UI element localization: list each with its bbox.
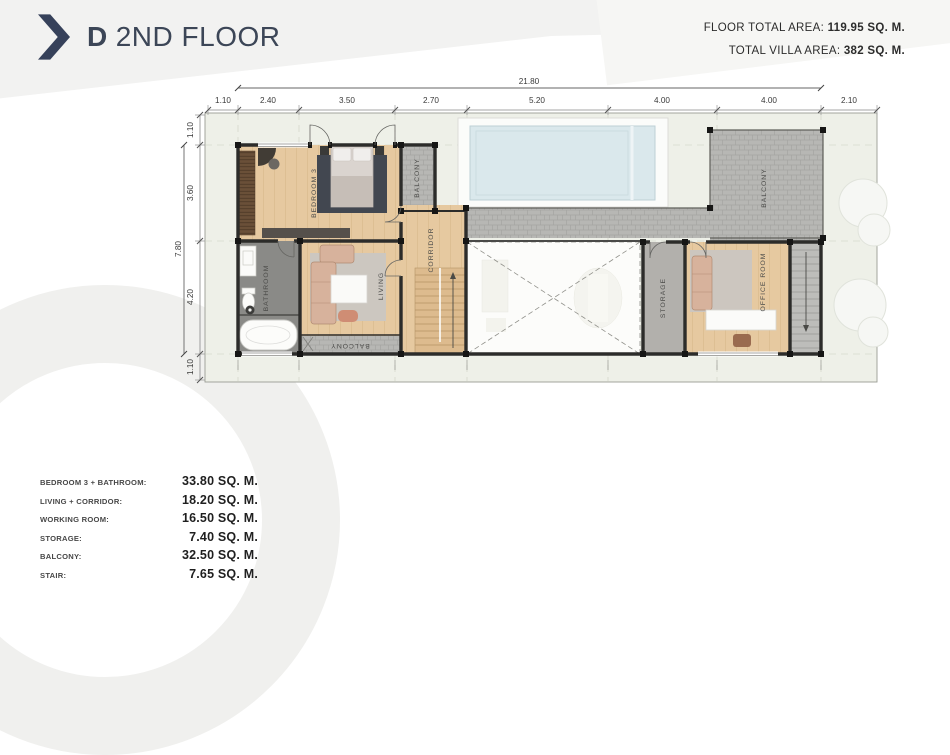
dim-top-5: 4.00 [654,96,670,105]
floor-plan: BEDROOM 3 BALCONY CORRIDOR BATHROOM LIVI… [170,60,910,390]
legend-label: STORAGE: [40,534,165,543]
dim-top-2: 3.50 [339,96,355,105]
room-label-storage: STORAGE [660,278,667,318]
legend-label: BALCONY: [40,552,165,561]
dim-left-total: 7.80 [174,241,183,257]
room-label-corridor: CORRIDOR [428,227,435,272]
dim-left-3: 1.10 [186,359,195,375]
dim-left-0: 1.10 [186,122,195,138]
floor-title: 2ND FLOOR [116,21,281,52]
dim-left-1: 3.60 [186,185,195,201]
dim-top-0: 1.10 [215,96,231,105]
villa-total-area: TOTAL VILLA AREA: 382 SQ. M. [704,45,905,57]
legend-value: 16.50 SQ. M. [165,511,258,525]
room-label-balcony-small: BALCONY [414,158,421,197]
legend-row: BEDROOM 3 + BATHROOM:33.80 SQ. M. [40,474,258,488]
dim-top-7: 2.10 [841,96,857,105]
page-header: D2ND FLOOR [38,14,280,60]
area-legend: BEDROOM 3 + BATHROOM:33.80 SQ. M. LIVING… [40,474,258,586]
bed [331,145,373,207]
dim-top-3: 2.70 [423,96,439,105]
dresser [262,228,350,238]
villa-total-value: 382 SQ. M. [844,45,905,57]
room-label-balcony-main: BALCONY [761,168,768,207]
legend-label: BEDROOM 3 + BATHROOM: [40,478,165,487]
floor-total-value: 119.95 SQ. M. [828,22,905,34]
wardrobe [239,151,255,235]
villa-total-label: TOTAL VILLA AREA: [729,45,844,57]
legend-label: WORKING ROOM: [40,515,165,524]
legend-value: 7.65 SQ. M. [165,567,258,581]
page-title: D2ND FLOOR [87,21,280,53]
bathtub [240,320,297,350]
desk [706,310,776,330]
legend-label: STAIR: [40,571,165,580]
legend-row: BALCONY:32.50 SQ. M. [40,548,258,562]
interior-stair [415,268,466,354]
room-label-bedroom: BEDROOM 3 [311,168,318,218]
dim-top-total: 21.80 [519,77,540,86]
legend-row: STAIR:7.65 SQ. M. [40,567,258,581]
legend-value: 33.80 SQ. M. [165,474,258,488]
legend-value: 18.20 SQ. M. [165,493,258,507]
room-label-office: OFFICE ROOM [760,253,767,312]
room-label-balcony-living: BALCONY [330,342,369,349]
living-furniture [310,245,386,324]
room-label-living: LIVING [378,272,385,300]
legend-value: 7.40 SQ. M. [165,530,258,544]
legend-row: WORKING ROOM:16.50 SQ. M. [40,511,258,525]
chevron-icon [38,14,70,60]
room-label-bathroom: BATHROOM [263,265,270,312]
legend-value: 32.50 SQ. M. [165,548,258,562]
dim-top-6: 4.00 [761,96,777,105]
dim-top-4: 5.20 [529,96,545,105]
legend-row: LIVING + CORRIDOR:18.20 SQ. M. [40,493,258,507]
dim-left-2: 4.20 [186,289,195,305]
floor-total-area: FLOOR TOTAL AREA: 119.95 SQ. M. [704,22,905,34]
dim-top-1: 2.40 [260,96,276,105]
pool [458,118,668,207]
legend-row: STORAGE:7.40 SQ. M. [40,530,258,544]
floor-total-label: FLOOR TOTAL AREA: [704,22,828,34]
floor-marker: D [87,21,108,52]
void-open-to-below [467,242,640,354]
legend-label: LIVING + CORRIDOR: [40,497,165,506]
